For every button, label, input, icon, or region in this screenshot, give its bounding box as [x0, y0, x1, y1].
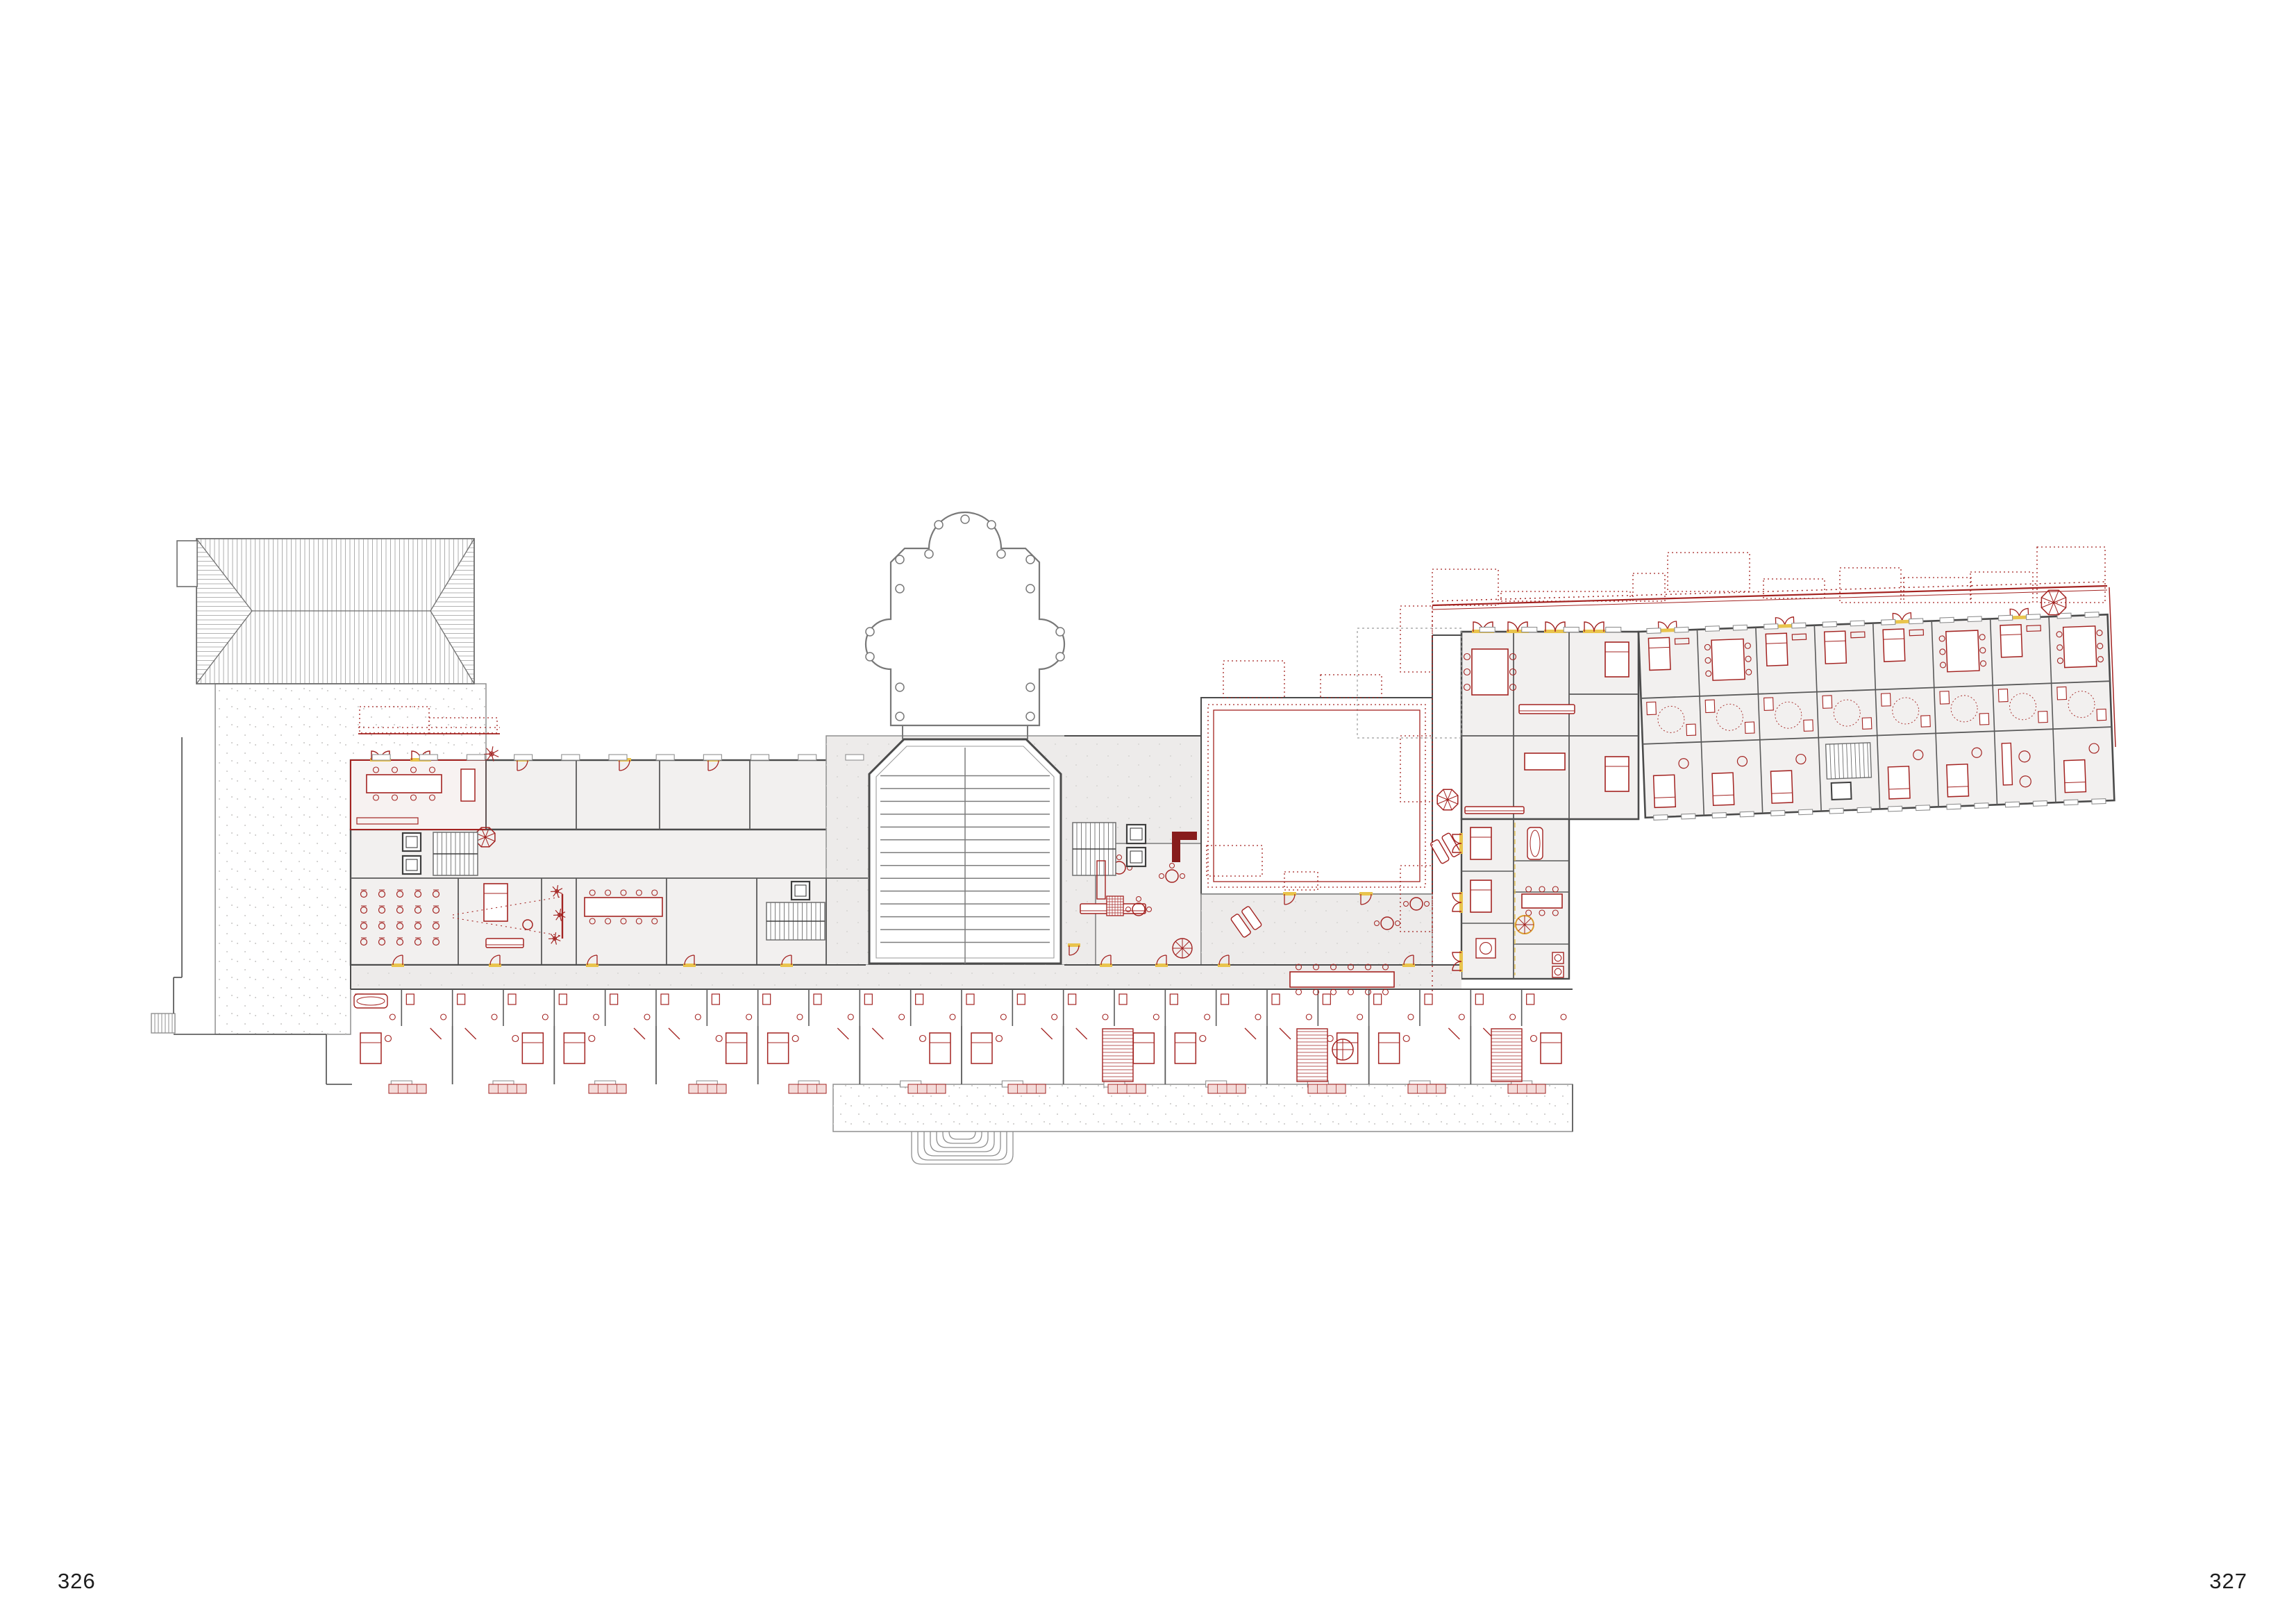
- page-number-right: 327: [2209, 1569, 2247, 1594]
- page-number-left: 326: [58, 1569, 96, 1594]
- chapel: [866, 512, 1064, 739]
- east-wing: [1639, 605, 2115, 821]
- floor-plan-drawing: [0, 0, 2296, 1623]
- guest-room-rows: [355, 989, 1566, 1093]
- book-spread: 326 327: [0, 0, 2296, 1623]
- roof-hatched: [177, 539, 474, 684]
- great-hall: [869, 739, 1061, 964]
